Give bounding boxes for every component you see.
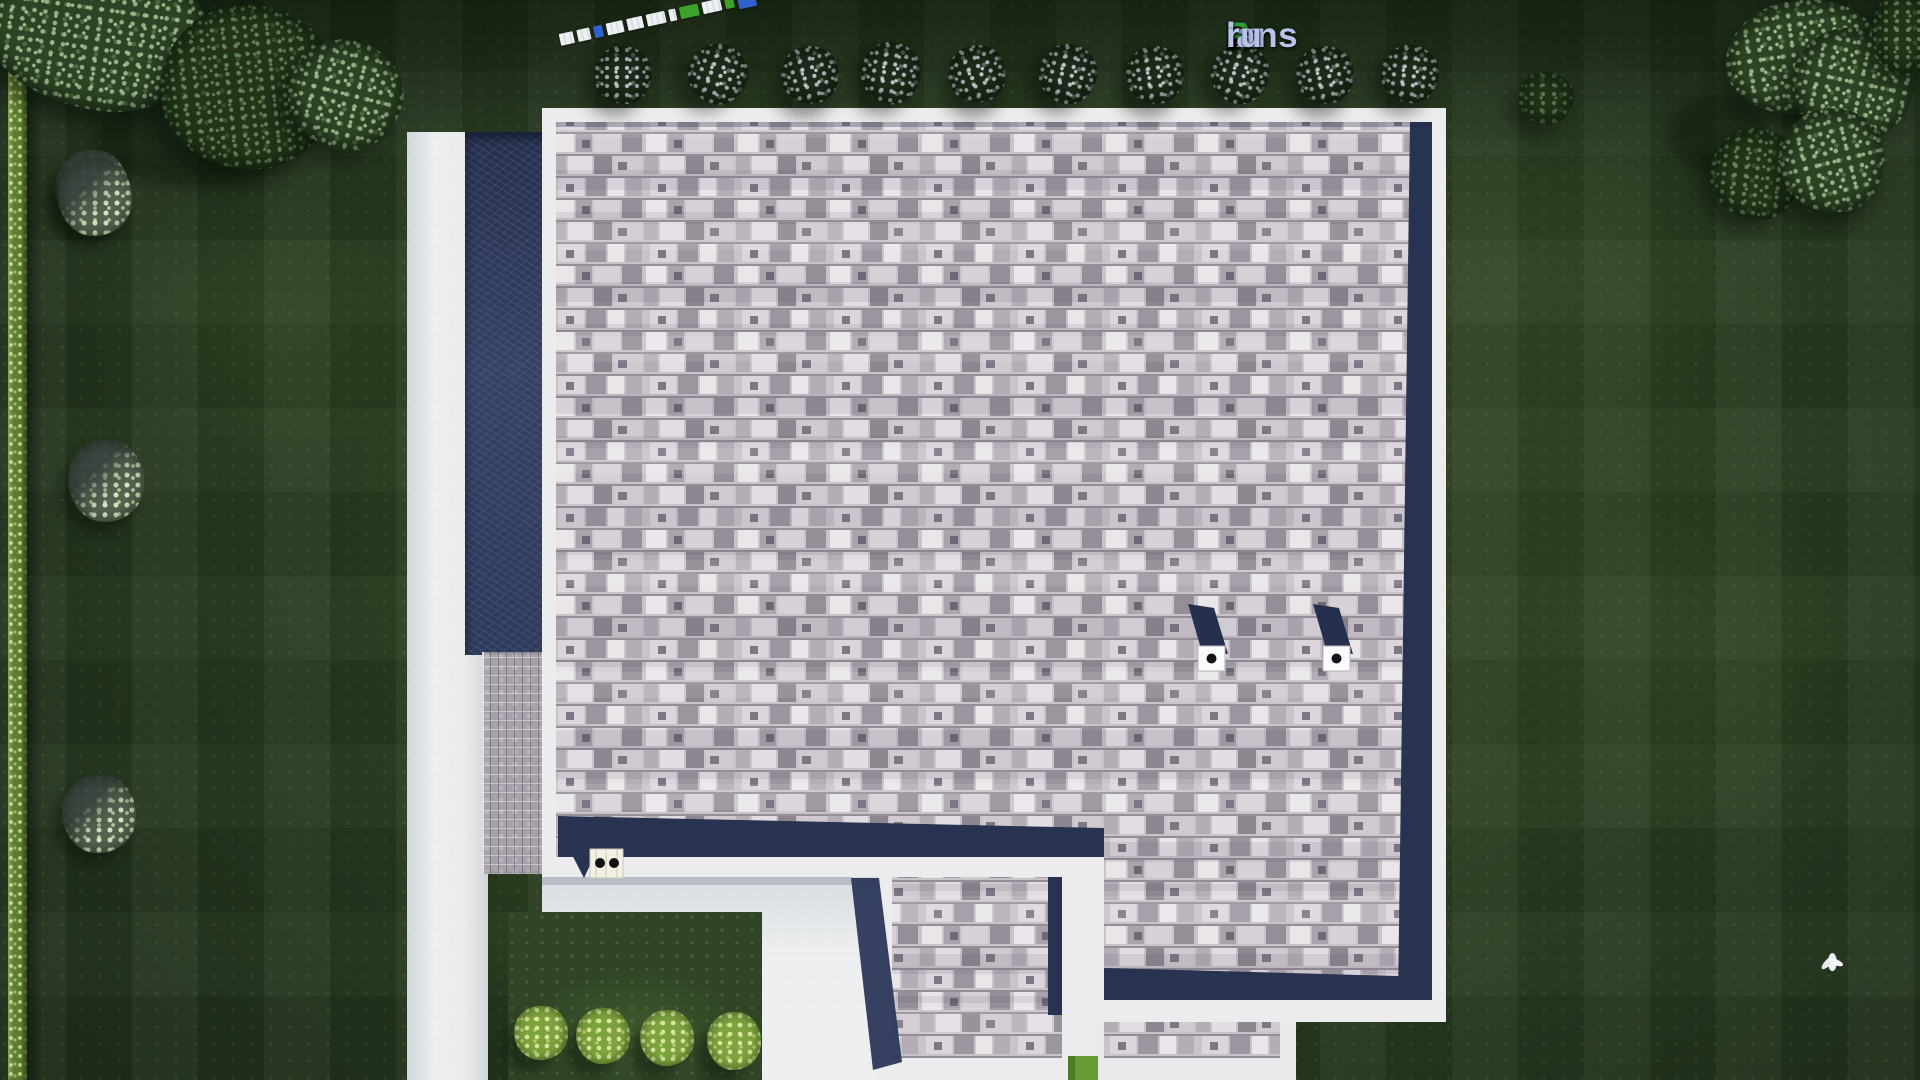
scale-segment — [626, 16, 645, 31]
site-plan-render: FixPlans.ru — [0, 0, 1920, 1080]
scale-segment — [592, 25, 604, 39]
bush — [707, 1012, 761, 1070]
bush — [576, 1008, 630, 1064]
scale-segment — [679, 3, 700, 19]
bird-icon — [1817, 949, 1846, 975]
bush — [62, 775, 136, 853]
bush — [68, 440, 144, 522]
roof-edge-shadow-top — [556, 122, 1432, 127]
scale-segment — [576, 28, 591, 42]
bush — [58, 158, 132, 236]
scale-segment — [605, 20, 625, 35]
lower-band-shingles — [1104, 1022, 1280, 1058]
tree — [594, 46, 652, 104]
bush — [640, 1010, 694, 1066]
scale-segment — [724, 0, 735, 9]
scale-segment — [559, 31, 575, 46]
roof-chimney-cap — [590, 849, 623, 878]
scale-bar — [560, 6, 760, 54]
scale-segment — [646, 11, 666, 27]
extension-edge-shadow — [1048, 877, 1062, 1015]
scale-segment — [736, 0, 758, 9]
bush — [514, 1006, 568, 1060]
tree — [1518, 72, 1574, 124]
scale-segment — [668, 8, 678, 21]
extension-shading — [892, 877, 1062, 1058]
logo-part: ru — [1226, 16, 1262, 56]
grass-sliver-shade — [1068, 1056, 1075, 1080]
fascia-soft-shadow — [542, 877, 852, 885]
scale-segment — [702, 0, 723, 14]
